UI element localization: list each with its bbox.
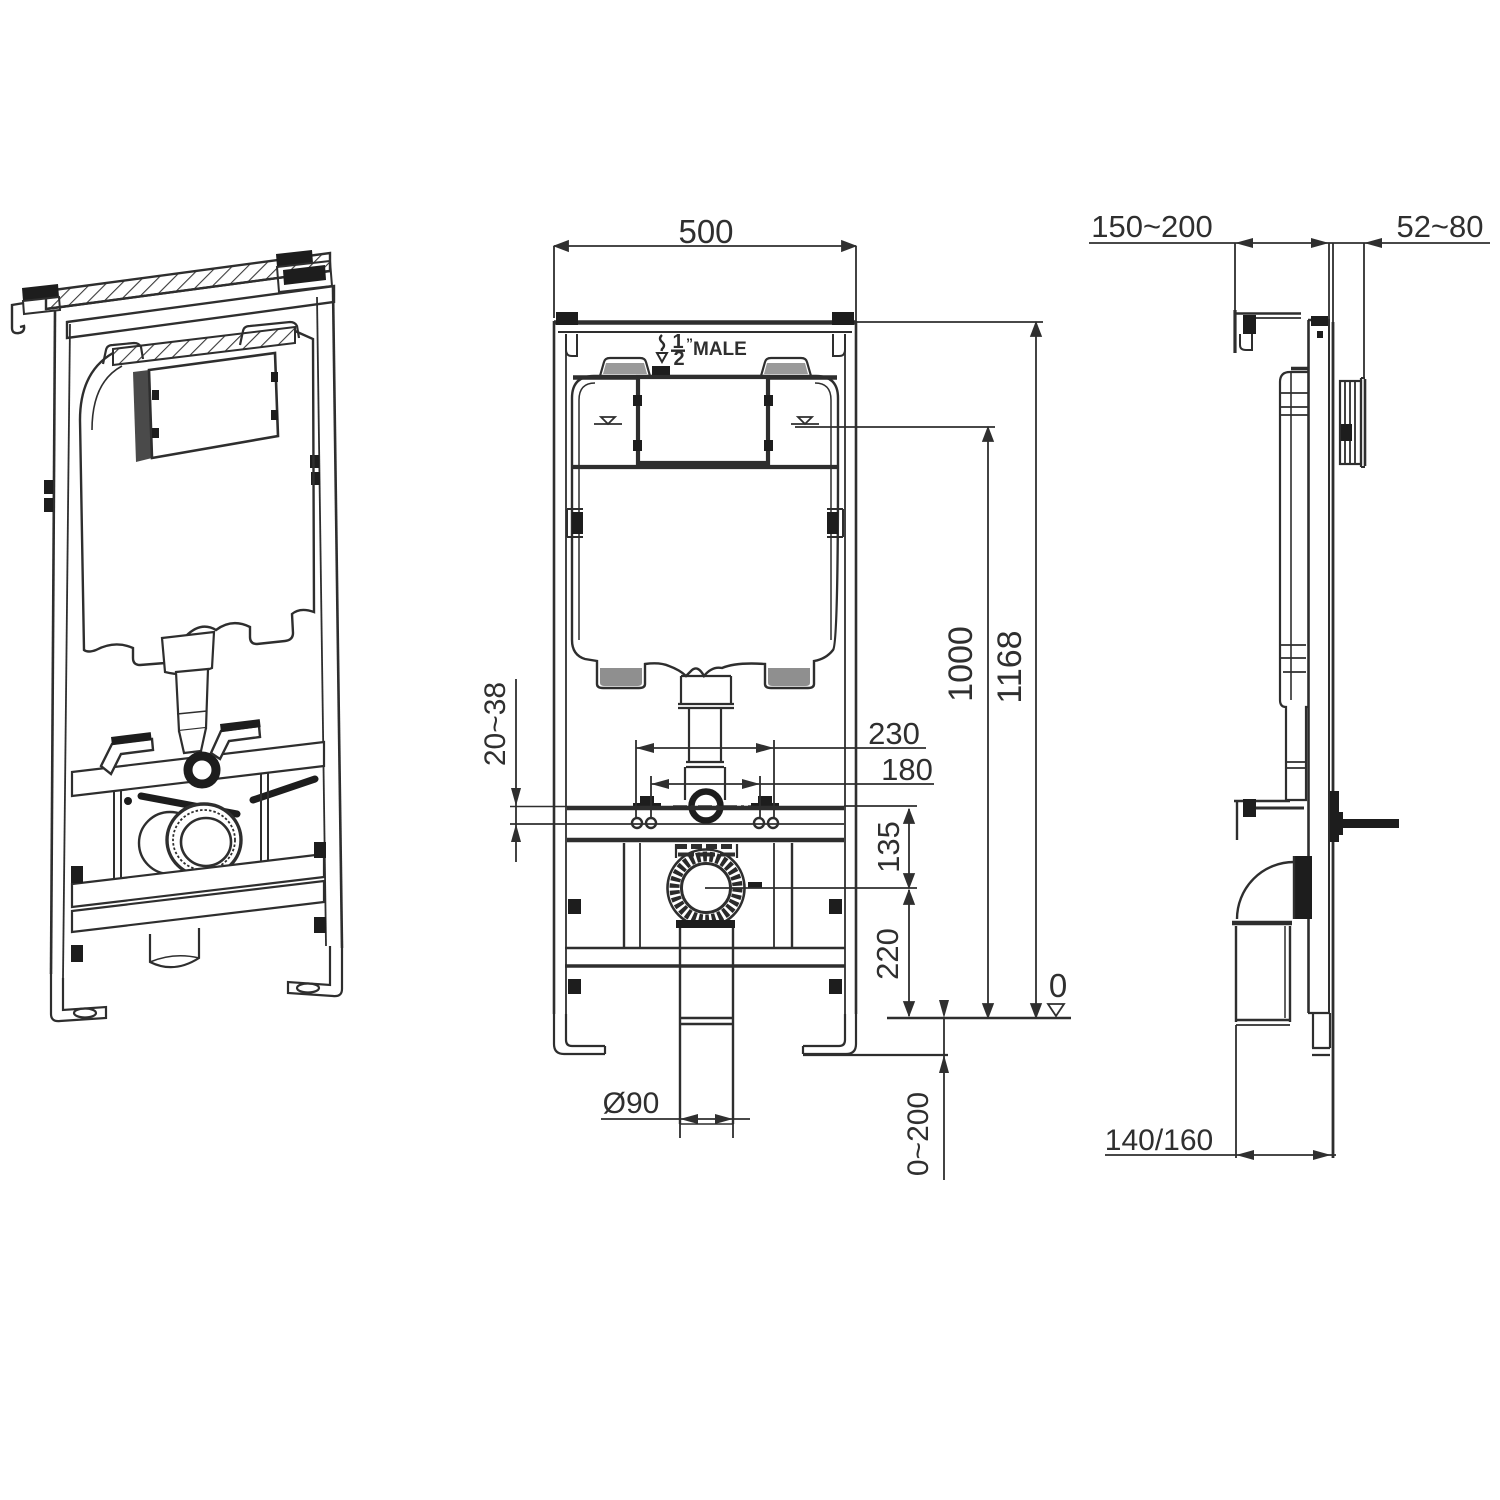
svg-text:0: 0 — [1049, 967, 1067, 1004]
svg-text:”: ” — [686, 335, 693, 351]
svg-text:20~38: 20~38 — [479, 682, 512, 766]
svg-text:1000: 1000 — [942, 626, 980, 702]
svg-text:180: 180 — [881, 752, 933, 787]
svg-text:220: 220 — [870, 928, 905, 980]
svg-text:135: 135 — [871, 821, 906, 873]
svg-text:0~200: 0~200 — [902, 1092, 935, 1176]
svg-text:2: 2 — [673, 348, 684, 370]
svg-text:1168: 1168 — [991, 630, 1029, 703]
svg-text:52~80: 52~80 — [1396, 209, 1483, 244]
svg-text:500: 500 — [678, 213, 733, 250]
svg-text:Ø90: Ø90 — [603, 1087, 660, 1120]
svg-text:150~200: 150~200 — [1091, 209, 1213, 244]
svg-text:140/160: 140/160 — [1105, 1124, 1213, 1157]
svg-text:MALE: MALE — [693, 339, 747, 360]
svg-text:230: 230 — [868, 716, 920, 751]
